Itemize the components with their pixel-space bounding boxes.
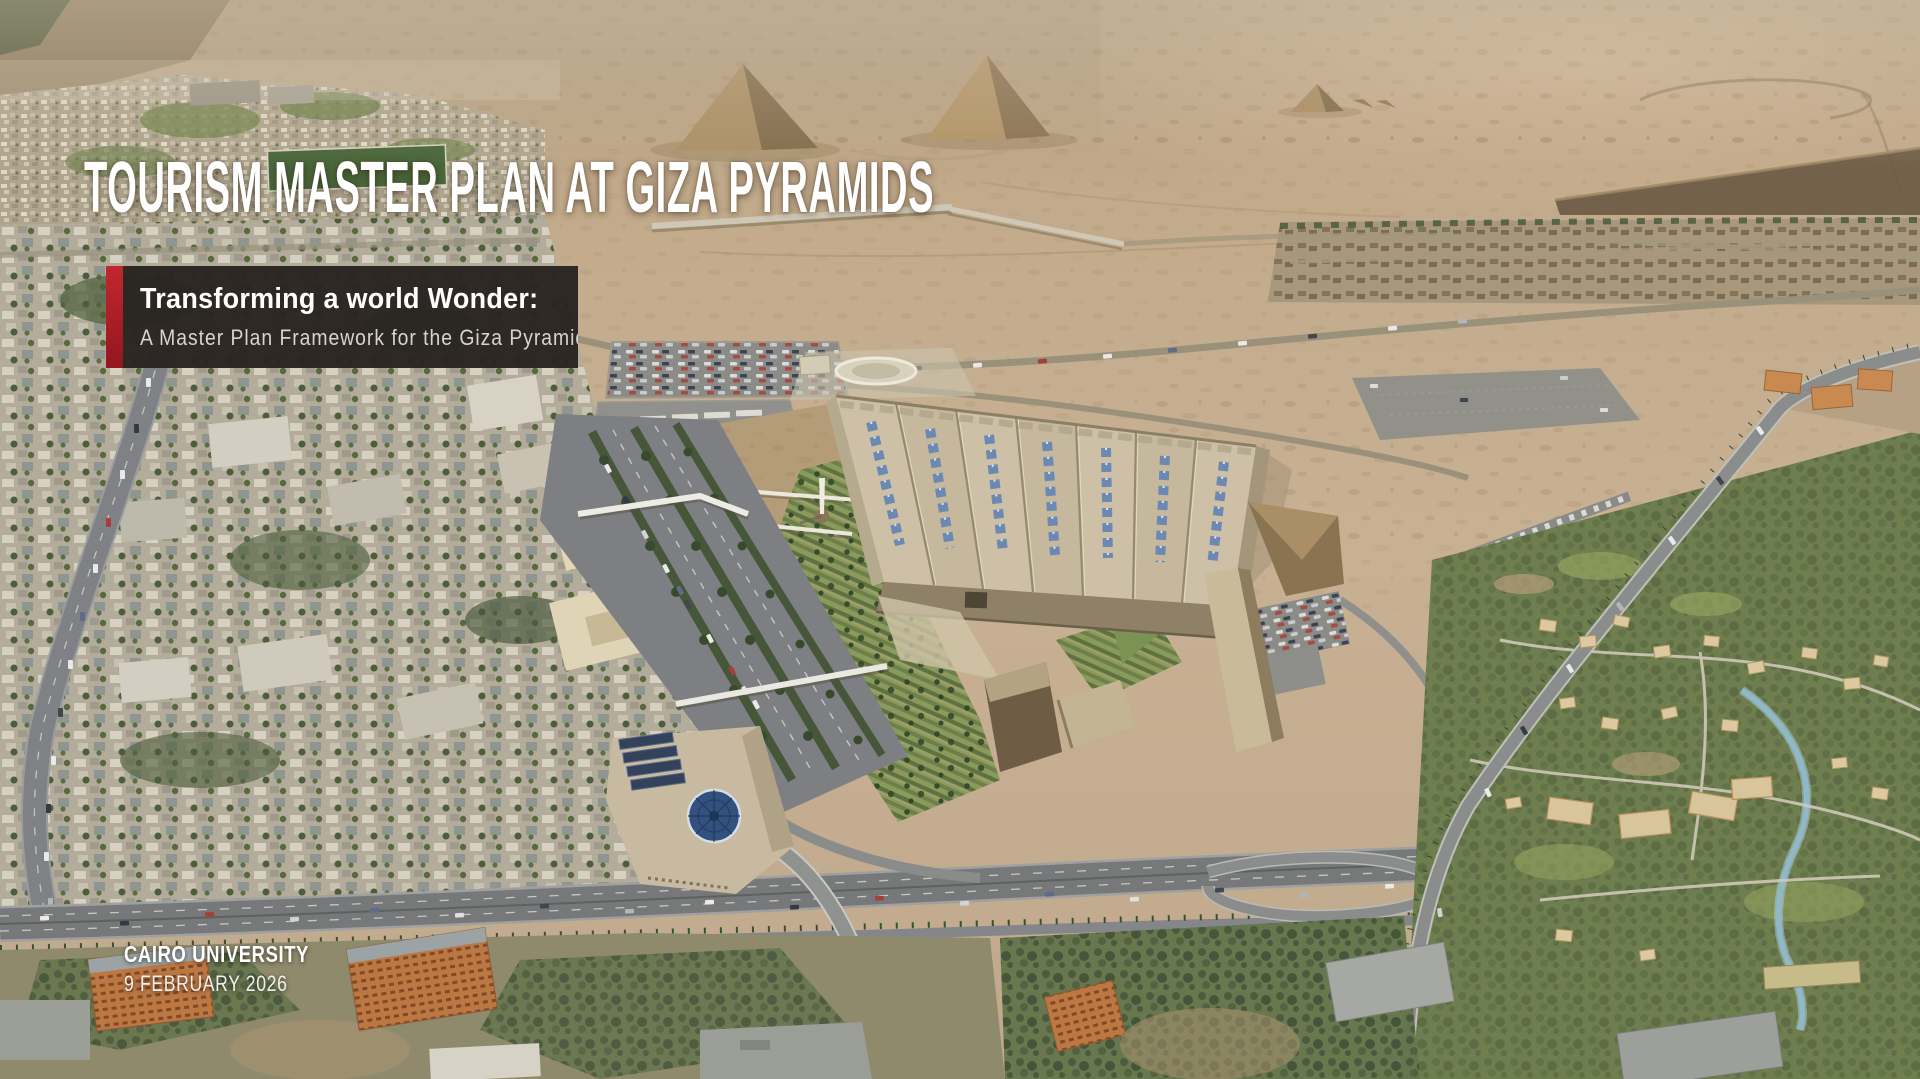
slide-title: TOURISM MASTER PLAN AT GIZA PYRAMIDS bbox=[84, 152, 934, 224]
red-accent-bar bbox=[106, 266, 123, 368]
subtitle-panel: Transforming a world Wonder: A Master Pl… bbox=[106, 266, 578, 368]
subtitle-panel-body: Transforming a world Wonder: A Master Pl… bbox=[123, 266, 578, 368]
atmospheric-haze bbox=[0, 0, 1920, 170]
title-slide: TOURISM MASTER PLAN AT GIZA PYRAMIDS Tra… bbox=[0, 0, 1920, 1079]
footer-date: 9 FEBRUARY 2026 bbox=[124, 971, 309, 997]
slide-footer: CAIRO UNIVERSITY 9 FEBRUARY 2026 bbox=[124, 941, 355, 997]
footer-organization: CAIRO UNIVERSITY bbox=[124, 941, 309, 968]
subtitle-subheading: A Master Plan Framework for the Giza Pyr… bbox=[140, 325, 517, 351]
dome-building bbox=[606, 726, 794, 894]
subtitle-heading: Transforming a world Wonder: bbox=[140, 283, 538, 316]
